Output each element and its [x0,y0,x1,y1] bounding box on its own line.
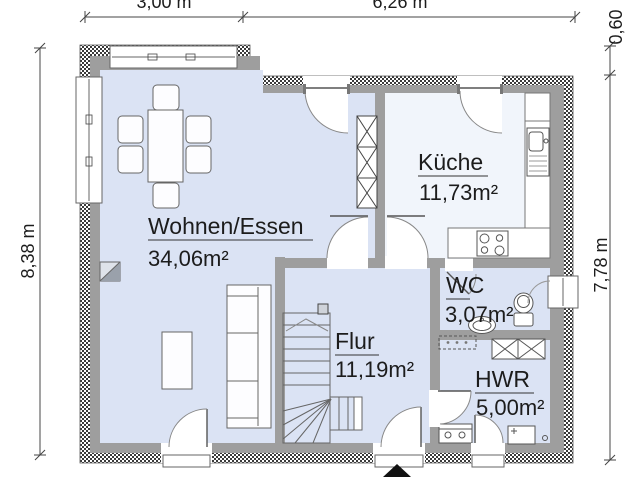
dining-chair [186,146,211,173]
svg-text:34,06m²: 34,06m² [148,246,229,271]
dimension-left-label: 8,38 m [18,223,38,278]
dining-table [148,110,183,182]
svg-text:3,07m²: 3,07m² [445,302,513,327]
dimension-right-top-label: 0,60 [606,9,626,44]
dining-chair [118,146,143,173]
svg-text:11,73m²: 11,73m² [419,180,498,205]
svg-text:WC: WC [446,272,484,298]
chimney-shaft [357,116,377,208]
window-top [110,46,237,68]
dining-chair [153,85,179,110]
dimension-right-label: 7,78 m [591,237,611,292]
toilet [514,293,533,326]
dining-chair [186,116,211,143]
dimension-top-right-label: 6,26 m [372,0,427,12]
svg-text:Küche: Küche [418,149,483,175]
cooktop [477,231,508,256]
svg-text:HWR: HWR [475,366,530,392]
dimension-top-left-label: 3,00 m [136,0,191,12]
svg-text:11,19m²: 11,19m² [335,357,414,382]
kitchen-sink [527,128,549,176]
floorplan-page: 3,00 m 6,26 m 8,38 m 0,60 7,78 m Wohnen/… [0,0,640,480]
storage-cabinet [492,339,545,359]
svg-text:Wohnen/Essen: Wohnen/Essen [148,213,304,239]
svg-text:5,00m²: 5,00m² [476,395,544,420]
dining-chair [118,116,143,143]
window-left [76,77,102,203]
washtub [439,424,472,443]
dimension-top [80,11,580,23]
coffee-table [162,332,192,389]
fireplace [100,262,120,281]
svg-text:Flur: Flur [335,328,375,354]
dining-chair [153,183,179,208]
floor-plan-svg: 3,00 m 6,26 m 8,38 m 0,60 7,78 m Wohnen/… [0,0,640,480]
sofa [227,285,271,428]
